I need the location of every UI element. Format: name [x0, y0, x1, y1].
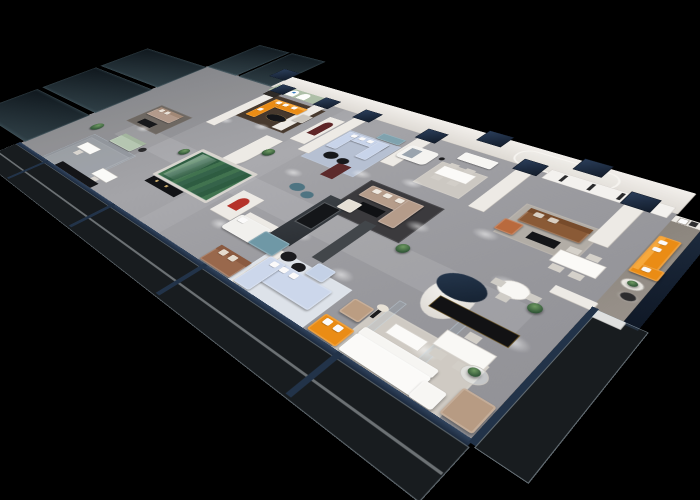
plan: [20, 66, 678, 440]
showroom-render: [0, 0, 700, 500]
